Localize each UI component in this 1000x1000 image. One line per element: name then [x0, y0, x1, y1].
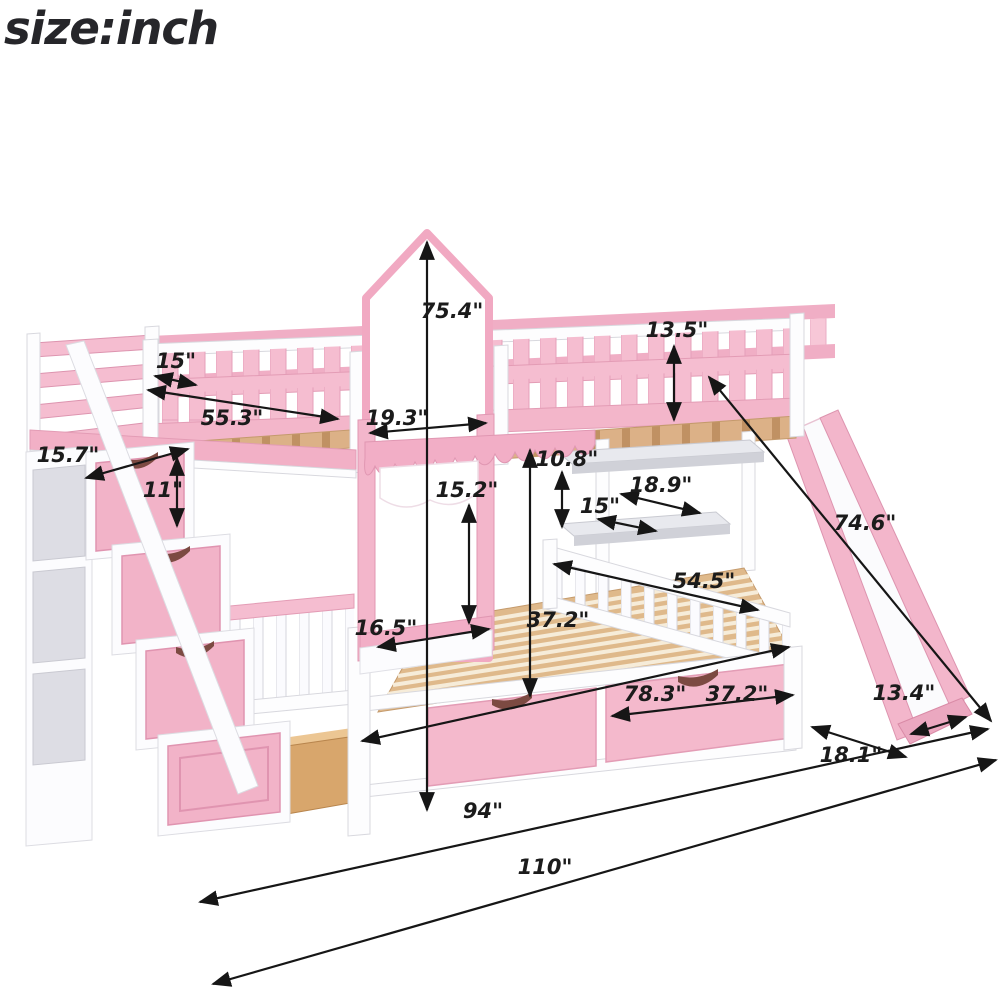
- open-cubby: [33, 567, 85, 663]
- product-dimension-diagram: size:inch: [0, 0, 1000, 1000]
- dim-slide-floor-clearance: 18.1": [812, 727, 906, 767]
- dimension-label-tower-panel-height: 15.2": [436, 478, 499, 502]
- dimension-label-lower-shelf-depth: 15": [580, 494, 620, 518]
- dimension-label-guardrail-height: 13.5": [646, 318, 709, 342]
- dimension-label-ledge-width: 16.5": [355, 616, 418, 640]
- dimension-label-bed-frame-length: 94": [463, 799, 503, 823]
- dimension-label-lower-guardrail-length: 54.5": [673, 569, 736, 593]
- dimension-label-drawer-width: 37.2": [706, 682, 769, 706]
- dimension-label-bunk-clearance-height: 37.2": [527, 608, 590, 632]
- open-cubby: [33, 669, 85, 765]
- dimension-label-upper-guardrail-length: 55.3": [201, 406, 264, 430]
- dimension-label-total-length: 110": [518, 855, 573, 879]
- dimension-label-slide-length: 74.6": [834, 511, 897, 535]
- dimension-label-total-height: 75.4": [421, 299, 484, 323]
- dimension-label-bed-interior-length: 78.3": [624, 682, 687, 706]
- dimension-label-headboard-depth: 19.3": [366, 406, 429, 430]
- dimension-label-upper-shelf-depth: 18.9": [630, 473, 693, 497]
- dimension-label-rail-gap: 15": [156, 349, 196, 373]
- dimension-label-slide-end-width: 13.4": [873, 681, 936, 705]
- wooden-drawer-front: [287, 736, 356, 814]
- open-cubby: [33, 465, 85, 561]
- dim-upper-shelf-depth: 18.9": [621, 473, 700, 513]
- dimension-label-shelf-spacing: 10.8": [536, 447, 599, 471]
- bunk-bed-diagram-svg: 75.4" 13.5" 15" 55.3" 19.3" 15.7": [0, 0, 1000, 1000]
- dimension-label-stair-tread-depth: 15.7": [37, 443, 100, 467]
- dimension-label-stair-riser-height: 11": [143, 478, 183, 502]
